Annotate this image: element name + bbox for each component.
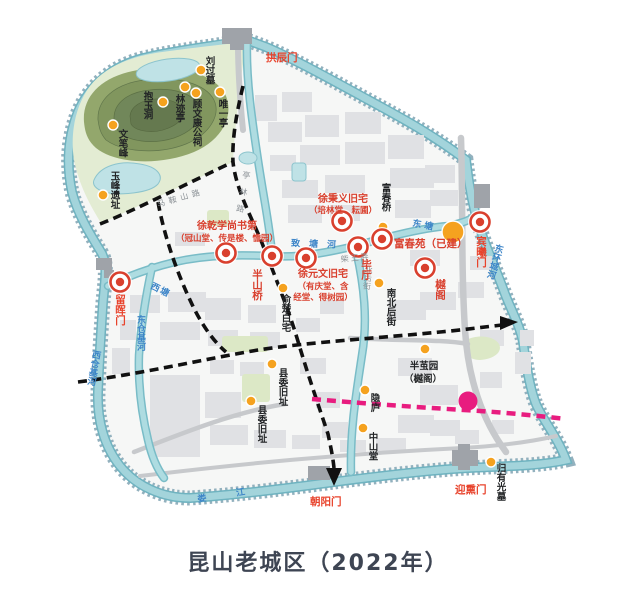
marker-binxi-gate: [468, 210, 492, 234]
dot-guwenkang: [191, 88, 201, 98]
marker-xuqianxue: [214, 241, 238, 265]
dot-yuchubai: [278, 283, 288, 293]
gate-label-liuhuimen: 留晖门: [114, 293, 126, 326]
label-wenbifeng: 文笔峰: [117, 128, 130, 158]
label-weiyiting: 唯一亭: [217, 98, 229, 128]
marker-liuhui-gate: [108, 270, 132, 294]
label-xubingyi-line2: （培林堂、耘圃）: [309, 205, 377, 216]
dot-xianwei-1: [267, 359, 277, 369]
label-fuchunqiao: 富春桥: [380, 182, 393, 212]
label-yuchubaizhai: 俞楚白宅: [280, 293, 293, 333]
dot-linjiting: [180, 82, 190, 92]
dot-baoyudong: [158, 97, 168, 107]
label-zhongshantang: 中山堂: [367, 431, 379, 460]
label-fuchunyuan: 富春苑（已建）: [394, 237, 468, 250]
kunshan-old-town-map: 马鞍山路 亭林路 北后街 柴王弄 西塘 东塘 致塘河 东仓基河 西仓基河 东环城…: [0, 0, 635, 596]
dot-yufengyizhi: [98, 190, 108, 200]
dot-weiyiting: [215, 87, 225, 97]
gate-label-chaoyangmen: 朝阳门: [310, 495, 342, 508]
label-xuqianxue-line2: （冠山堂、传是楼、憺园）: [176, 233, 278, 244]
label-guwenkanggongci: 顾文康公祠: [191, 99, 204, 147]
label-xubingyi-line1: 徐秉义旧宅: [317, 192, 368, 205]
marker-yuege: [413, 256, 437, 280]
label-xianweijiuzhi-1: 县委旧址: [277, 368, 290, 406]
river-label-dongcangjihe: 东仓基河: [135, 314, 147, 352]
binxi-gate-structure: [474, 184, 490, 208]
label-nanbeihoujie: 南北后街: [385, 287, 398, 327]
label-xianweijiuzhi-2: 县委旧址: [256, 405, 269, 443]
label-yinlu: 隐庐: [369, 392, 381, 413]
label-xuyuanwen-line3: 经堂、得树园）: [293, 292, 353, 303]
marker-banshanqiao: [260, 244, 284, 268]
label-banshanqiao: 半山桥: [251, 268, 263, 301]
map-title: 昆山老城区（2022年）: [187, 550, 448, 576]
label-liuguomu: 刘过墓: [204, 55, 217, 85]
label-banjianyuan-line2: （樾阁）: [404, 373, 442, 385]
planned-node-pink: [459, 392, 478, 411]
label-xuyuanwen-line1: 徐元文旧宅: [297, 267, 348, 280]
dot-banjianyuan: [420, 344, 430, 354]
label-banjianyuan-line1: 半茧园: [410, 360, 439, 372]
gongchen-gate-structure: [222, 28, 252, 44]
label-biting: 毕厅: [360, 258, 372, 281]
gate-label-binximen: 宾曦门: [475, 235, 487, 268]
label-linjiting: 林迹亭: [174, 93, 186, 123]
label-yufengyizhi: 玉峰遗址: [109, 171, 122, 209]
pond-small: [292, 163, 306, 181]
dot-nanbeihoujie: [374, 278, 384, 288]
gate-label-yingxunmen: 迎熏门: [455, 483, 487, 496]
label-baoyudong: 抱玉洞: [142, 90, 155, 120]
dot-xianwei-2: [246, 396, 256, 406]
pond-tiny: [239, 152, 257, 164]
label-yuege: 樾阁: [434, 278, 446, 301]
label-xuqianxue-line1: 徐乾学尚书第: [196, 219, 257, 232]
label-guiyouguangmu: 归有光墓: [495, 462, 508, 502]
gate-label-gongchenmen: 拱辰门: [266, 51, 298, 64]
label-xuyuanwen-line2: （有庆堂、含: [297, 281, 349, 292]
liuhui-gate-structure: [96, 258, 112, 270]
marker-fuchunyuan: [370, 227, 394, 251]
